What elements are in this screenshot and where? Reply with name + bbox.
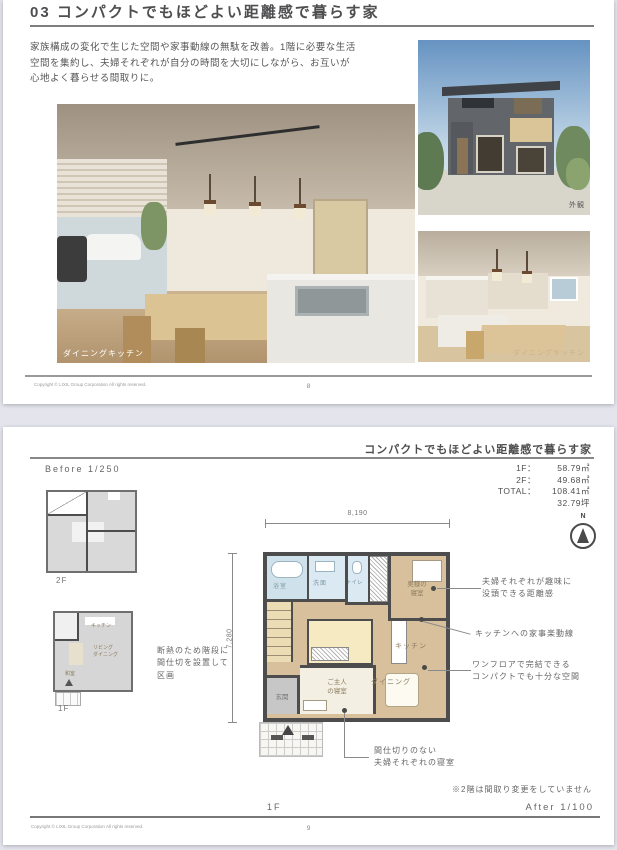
page2-title: コンパクトでもほどよい距離感で暮らす家 <box>364 441 592 457</box>
plan-wall <box>297 675 300 714</box>
page-number: 9 <box>3 825 614 832</box>
plan-toilet-label: トイレ <box>346 578 363 586</box>
page2-title-rule <box>30 457 594 459</box>
before-1f-kitchen-label: キッチン <box>91 623 111 630</box>
dimension-width-line <box>265 523 450 524</box>
pdf-viewer-canvas: { "page1": { "title": "03 コンパクトでもほどよい距離感… <box>0 0 617 850</box>
plan-wall <box>291 602 293 662</box>
footer-rule <box>25 375 592 377</box>
ext-accent-panel <box>510 118 552 142</box>
render-sink <box>295 286 369 316</box>
kit-cabinets-left <box>426 276 488 318</box>
plan-wall <box>373 665 376 714</box>
slide-page-1: 03 コンパクトでもほどよい距離感で暮らす家 家族構成の変化で生じた空間や家事動… <box>3 0 614 404</box>
before-1f-wall <box>55 639 79 641</box>
plan-husband-room: ご主人 の寝室 <box>300 668 373 714</box>
render-chair-2 <box>175 328 205 363</box>
plan-wall <box>388 556 391 621</box>
before-1f-plan: キッチン リビング ダイニング 和室 <box>53 611 133 692</box>
area-value: 108.41㎡ <box>536 486 590 498</box>
callout-line-nopartition-v <box>344 713 345 758</box>
render-pendant-1 <box>204 200 216 215</box>
area-label: 1F： <box>488 463 536 475</box>
dimension-tick <box>449 519 450 528</box>
note-2f-unchanged: ※2階は間取り変更をしていません <box>452 784 592 795</box>
ext-window-lower-2 <box>516 146 546 174</box>
render-caption: ダイニングキッチン <box>63 348 144 359</box>
area-label: 2F： <box>488 475 536 487</box>
exterior-render-image: 外観 <box>418 40 590 215</box>
plan-closet-hatched <box>369 556 388 602</box>
ext-bush-left <box>418 132 444 190</box>
porch-entrance-arrow-icon <box>282 725 294 735</box>
area-value: 58.79㎡ <box>536 463 590 475</box>
before-1f-room <box>55 613 77 639</box>
hobby-annotation: 夫婦それぞれが趣味に 没頭できる距離感 <box>482 576 572 601</box>
callout-dot-dining <box>422 665 427 670</box>
callout-line-onefloor <box>428 670 471 671</box>
dining-kitchen-render-image: ダイニングキッチン <box>57 104 415 363</box>
plan-wall <box>267 599 345 602</box>
page-number: 8 <box>3 383 614 390</box>
ext-window-lower-1 <box>476 135 504 173</box>
before-2f-label: 2F <box>56 576 67 585</box>
area-row-1f: 1F： 58.79㎡ <box>488 463 590 475</box>
before-1f-stairs <box>69 643 83 665</box>
render-white-car <box>85 234 141 260</box>
render-pendant-3 <box>294 204 306 219</box>
kit-pendant-1 <box>492 269 502 281</box>
ext-window-upper-2 <box>514 98 542 114</box>
area-row-total: TOTAL： 108.41㎡ <box>488 486 590 498</box>
plan-entrance-label: 玄関 <box>269 691 295 701</box>
plan-dining-label: ダイニング <box>371 677 439 687</box>
kit-pendant-stem-1 <box>496 249 498 269</box>
porch-step-mark <box>302 735 314 740</box>
before-2f-wall <box>86 530 135 532</box>
ext-door <box>457 138 468 174</box>
render-pendant-2 <box>249 202 261 217</box>
plan-wall <box>388 618 446 621</box>
ext-bush-right-2 <box>566 158 590 190</box>
render-plant <box>141 202 167 250</box>
before-1f-wall <box>77 613 79 639</box>
plan-bath-label: 浴室 <box>273 581 287 590</box>
before-2f-balcony <box>48 492 86 514</box>
render-table <box>145 294 267 340</box>
dimension-tick <box>228 722 237 723</box>
slide-page-2: コンパクトでもほどよい距離感で暮らす家 1F： 58.79㎡ 2F： 49.68… <box>3 427 614 845</box>
before-1f-label: 1F <box>58 704 69 713</box>
render-pendant-stem-3 <box>299 178 301 204</box>
plan-kitchen-label: キッチン <box>395 641 445 651</box>
plan-wife-bed <box>412 560 442 582</box>
plan-wall <box>300 665 376 668</box>
plan-toilet: トイレ <box>345 556 369 602</box>
plan-wall <box>345 556 348 602</box>
area-row-2f: 2F： 49.68㎡ <box>488 475 590 487</box>
page2-footer-rule <box>30 816 600 818</box>
before-2f-closet <box>108 492 120 500</box>
kit-pendant-stem-2 <box>526 251 528 271</box>
plan-wall <box>267 675 300 678</box>
render-dark-car <box>57 236 87 282</box>
plan-husband-room-label: ご主人 の寝室 <box>314 678 360 696</box>
dimension-height-line <box>232 553 233 723</box>
kitchen-render-image: ダイニングキッチン <box>418 231 590 362</box>
after-1f-label: 1F <box>267 802 282 812</box>
area-value: 49.68㎡ <box>536 475 590 487</box>
plan-center-closet-hatched <box>311 647 349 661</box>
plan-wife-room-label: 奥様の 寝室 <box>389 580 445 598</box>
plan-washroom: 洗面 <box>307 556 345 599</box>
plan-wall <box>368 556 370 602</box>
exterior-caption: 外観 <box>569 200 585 210</box>
after-floor-plan: 浴室 洗面 トイレ 奥様の 寝室 キッチン ダイニング ご主人 の寝室 玄関 <box>263 552 450 722</box>
description-text: 家族構成の変化で生じた空間や家事動線の無駄を改善。1階に必要な生活 空間を集約し… <box>30 40 430 87</box>
porch-step-mark <box>271 735 283 740</box>
area-label <box>488 498 536 510</box>
compass-icon <box>570 523 596 549</box>
dimension-tick <box>265 519 266 528</box>
render-pendant-stem-1 <box>209 174 211 200</box>
page-title: 03 コンパクトでもほどよい距離感で暮らす家 <box>30 1 380 22</box>
kit-window <box>550 277 578 301</box>
dimension-width-label: 8,190 <box>265 510 450 517</box>
no-partition-annotation: 間仕切りのない 夫婦それぞれの寝室 <box>374 745 455 770</box>
kitchen-flow-annotation: キッチンへの家事楽動線 <box>475 628 574 640</box>
ext-roof <box>442 81 560 96</box>
area-row-tsubo: 32.79坪 <box>488 498 590 510</box>
callout-line-nopartition-h <box>344 757 369 758</box>
area-table: 1F： 58.79㎡ 2F： 49.68㎡ TOTAL： 108.41㎡ 32.… <box>488 463 590 509</box>
before-2f-wall <box>48 514 86 516</box>
compass-needle <box>577 528 589 543</box>
plan-wall <box>307 556 309 599</box>
plan-entrance: 玄関 <box>267 678 297 714</box>
plan-sink <box>315 561 335 572</box>
kit-ceiling <box>418 231 590 276</box>
compass-n-label: N <box>570 513 596 520</box>
one-floor-annotation: ワンフロアで完結できる コンパクトでも十分な空間 <box>472 659 580 684</box>
after-label: After 1/100 <box>526 802 594 813</box>
before-1f-entrance-arrow-icon <box>65 679 73 686</box>
render-pendant-stem-2 <box>254 176 256 202</box>
before-label: Before 1/250 <box>45 464 121 474</box>
kit-chair <box>466 331 484 359</box>
callout-line-hobby <box>437 588 481 589</box>
plan-center-room <box>307 619 373 665</box>
plan-toilet-fixture <box>352 561 362 574</box>
area-label: TOTAL： <box>488 486 536 498</box>
area-value: 32.79坪 <box>536 498 590 510</box>
title-rule <box>30 25 594 27</box>
plan-wall <box>345 602 388 605</box>
plan-bathtub <box>271 561 303 578</box>
before-2f-hall <box>72 522 104 542</box>
plan-husband-bed <box>303 700 327 711</box>
plan-porch <box>259 722 323 757</box>
before-1f-living-label: リビング ダイニング <box>93 645 118 659</box>
before-2f-plan <box>46 490 137 573</box>
plan-wash-label: 洗面 <box>313 578 327 587</box>
insulation-annotation: 断熱のため階段に 間仕切を設置して 区画 <box>157 645 229 682</box>
ext-window-upper-1 <box>462 98 494 108</box>
dimension-tick <box>228 553 237 554</box>
kit-pendant-2 <box>522 271 532 283</box>
kitchen-caption: ダイニングキッチン <box>513 348 585 358</box>
callout-dot-wife <box>431 586 436 591</box>
plan-stairs <box>267 602 291 662</box>
plan-bathroom: 浴室 <box>267 556 307 599</box>
before-1f-washitsu-label: 和室 <box>65 671 75 678</box>
